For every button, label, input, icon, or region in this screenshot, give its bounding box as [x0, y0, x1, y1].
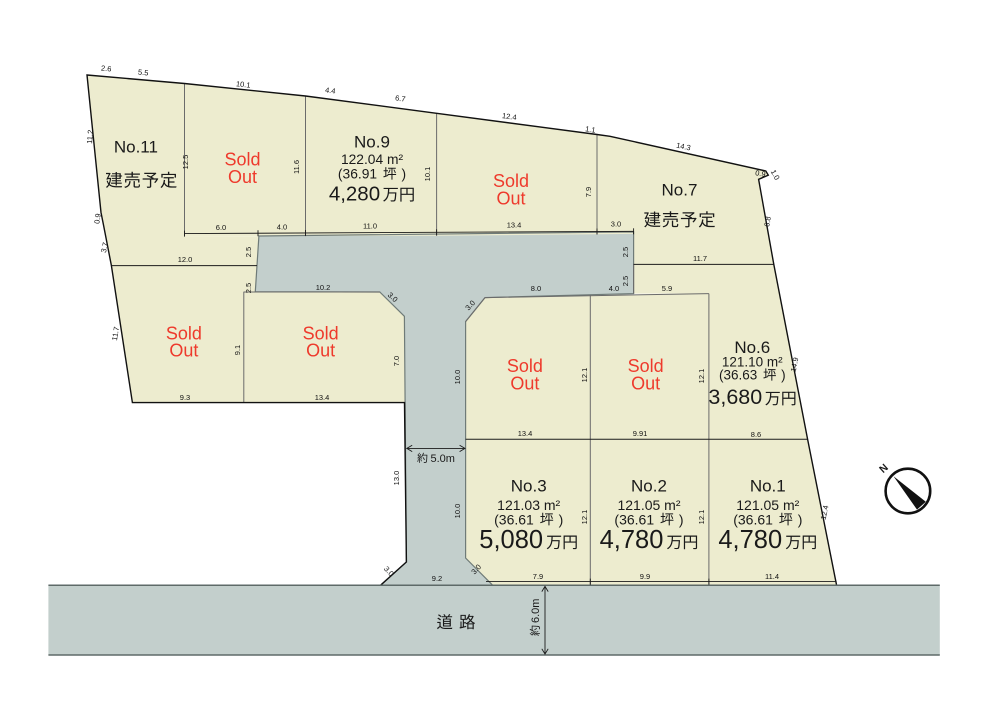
- svg-text:11.2: 11.2: [85, 130, 95, 145]
- svg-text:6.0: 6.0: [216, 223, 226, 232]
- svg-text:11.7: 11.7: [693, 254, 707, 263]
- svg-text:No.11: No.11: [114, 138, 158, 157]
- svg-text:Out: Out: [496, 189, 525, 209]
- svg-text:N: N: [877, 462, 891, 476]
- svg-text:2.5: 2.5: [244, 283, 253, 293]
- svg-text:Out: Out: [306, 341, 335, 361]
- svg-text:7.0: 7.0: [392, 356, 401, 366]
- svg-text:4,780: 4,780: [600, 526, 664, 554]
- svg-text:9.91: 9.91: [633, 429, 648, 438]
- svg-text:10.2: 10.2: [316, 283, 331, 292]
- svg-text:2.5: 2.5: [244, 247, 253, 257]
- svg-text:No.9: No.9: [354, 133, 390, 152]
- svg-text:7.9: 7.9: [584, 187, 593, 197]
- svg-text:6.0m: 6.0m: [530, 599, 542, 623]
- svg-text:4,780: 4,780: [718, 526, 782, 554]
- svg-text:9.1: 9.1: [233, 345, 242, 355]
- svg-text:4.4: 4.4: [325, 85, 336, 95]
- svg-text:(36.61: (36.61: [733, 511, 773, 527]
- svg-text:4.0: 4.0: [277, 223, 287, 232]
- svg-text:12.1: 12.1: [697, 369, 706, 384]
- svg-text:0.9: 0.9: [755, 168, 767, 179]
- svg-text:Out: Out: [631, 373, 660, 393]
- svg-text:2.5: 2.5: [621, 247, 630, 257]
- svg-text:13.0: 13.0: [392, 471, 401, 486]
- svg-text:2.5: 2.5: [621, 276, 630, 286]
- svg-text:(36.63: (36.63: [719, 368, 757, 383]
- svg-text:12.0: 12.0: [178, 255, 193, 264]
- svg-text:12.4: 12.4: [501, 111, 517, 122]
- svg-text:(36.61: (36.61: [614, 511, 654, 527]
- svg-text:6.8: 6.8: [762, 216, 773, 228]
- svg-text:4,280: 4,280: [329, 182, 380, 205]
- svg-text:5.9: 5.9: [662, 284, 672, 293]
- svg-text:11.0: 11.0: [363, 222, 377, 231]
- svg-text:12.1: 12.1: [697, 510, 706, 525]
- svg-text:13.4: 13.4: [315, 393, 330, 402]
- svg-text:4.0: 4.0: [609, 284, 619, 293]
- svg-text:12.1: 12.1: [580, 510, 589, 525]
- svg-text:10.0: 10.0: [453, 370, 462, 385]
- svg-text:5,080: 5,080: [479, 526, 543, 554]
- svg-text:9.2: 9.2: [432, 574, 442, 583]
- svg-text:11.7: 11.7: [110, 326, 121, 341]
- svg-text:12.1: 12.1: [580, 368, 589, 383]
- svg-text:5.5: 5.5: [138, 67, 149, 77]
- svg-text:8.6: 8.6: [751, 430, 761, 439]
- svg-text:6.7: 6.7: [395, 93, 407, 103]
- svg-text:5.0m: 5.0m: [431, 453, 455, 465]
- svg-text:11.6: 11.6: [292, 160, 301, 174]
- svg-text:0.9: 0.9: [92, 213, 102, 225]
- svg-text:): ): [679, 511, 684, 527]
- svg-text:10.1: 10.1: [236, 79, 251, 89]
- svg-text:13.4: 13.4: [518, 429, 533, 438]
- svg-text:No.3: No.3: [511, 477, 547, 496]
- svg-text:No.1: No.1: [750, 477, 786, 496]
- svg-text:2.6: 2.6: [101, 63, 112, 73]
- svg-text:No.7: No.7: [662, 181, 698, 200]
- svg-text:13.4: 13.4: [507, 221, 522, 230]
- svg-text:(36.91: (36.91: [338, 167, 377, 182]
- svg-text:10.1: 10.1: [423, 167, 432, 182]
- svg-text:3,680: 3,680: [708, 385, 762, 409]
- svg-text:12.4: 12.4: [819, 504, 831, 520]
- svg-text:3.0: 3.0: [611, 220, 621, 229]
- svg-text:7.9: 7.9: [533, 572, 543, 581]
- svg-text:11.4: 11.4: [765, 572, 779, 581]
- svg-text:1.1: 1.1: [585, 124, 597, 135]
- svg-text:9.3: 9.3: [180, 393, 190, 402]
- svg-text:9.9: 9.9: [640, 572, 650, 581]
- svg-text:8.0: 8.0: [531, 284, 541, 293]
- svg-text:): ): [401, 167, 406, 182]
- svg-text:Out: Out: [510, 373, 539, 393]
- svg-text:1.0: 1.0: [769, 168, 782, 181]
- svg-text:Out: Out: [169, 341, 198, 361]
- svg-text:No.2: No.2: [631, 477, 667, 496]
- svg-text:): ): [559, 511, 564, 527]
- svg-text:122.04 m²: 122.04 m²: [341, 152, 404, 167]
- svg-text:): ): [781, 368, 786, 383]
- svg-text:10.0: 10.0: [453, 504, 462, 519]
- svg-text:Out: Out: [228, 167, 257, 187]
- svg-text:(36.61: (36.61: [494, 511, 534, 527]
- svg-text:12.5: 12.5: [181, 155, 190, 170]
- svg-text:14.9: 14.9: [789, 356, 801, 372]
- svg-text:): ): [798, 511, 803, 527]
